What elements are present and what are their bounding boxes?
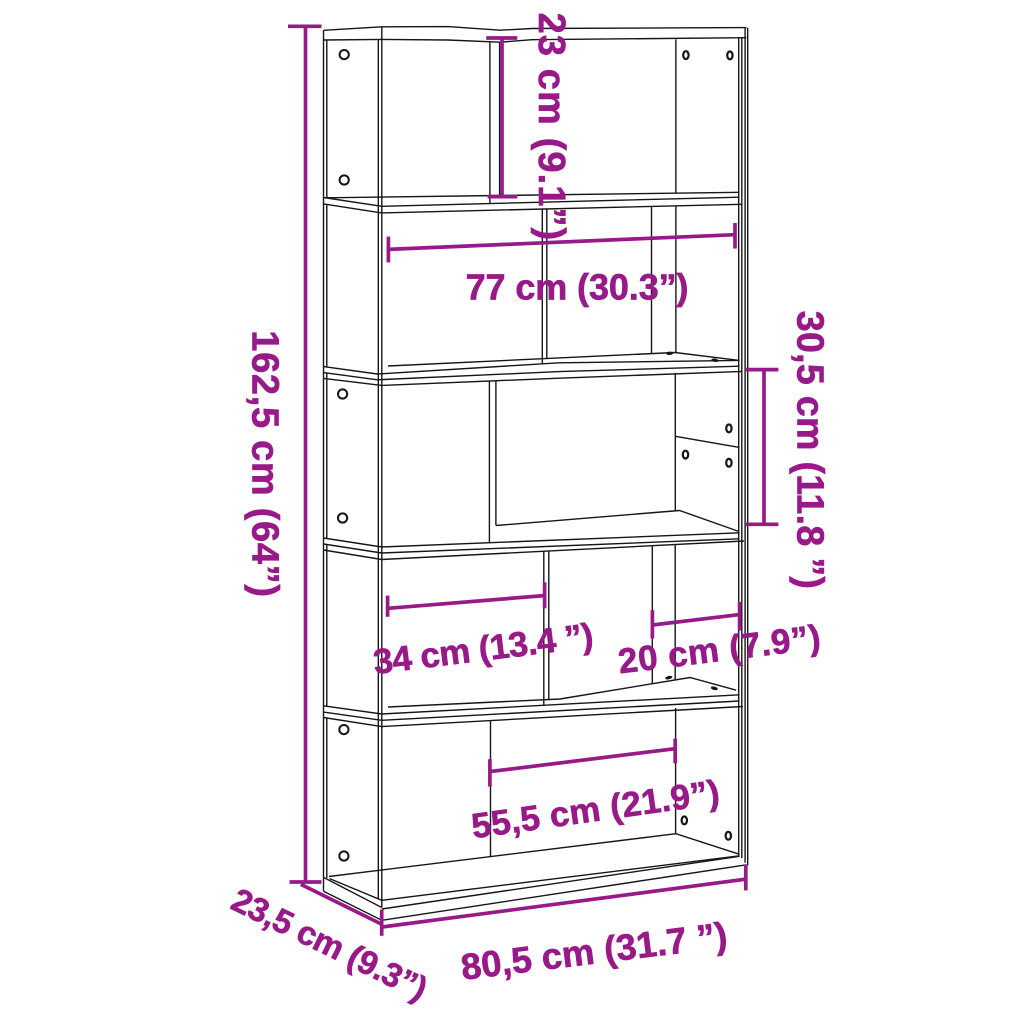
svg-text:23 cm (9.1”): 23 cm (9.1”) (530, 13, 572, 242)
svg-text:30,5 cm (11.8 ”): 30,5 cm (11.8 ”) (790, 311, 832, 589)
svg-text:162,5 cm (64”): 162,5 cm (64”) (243, 330, 285, 598)
svg-text:77 cm (30.3”): 77 cm (30.3”) (466, 266, 689, 307)
